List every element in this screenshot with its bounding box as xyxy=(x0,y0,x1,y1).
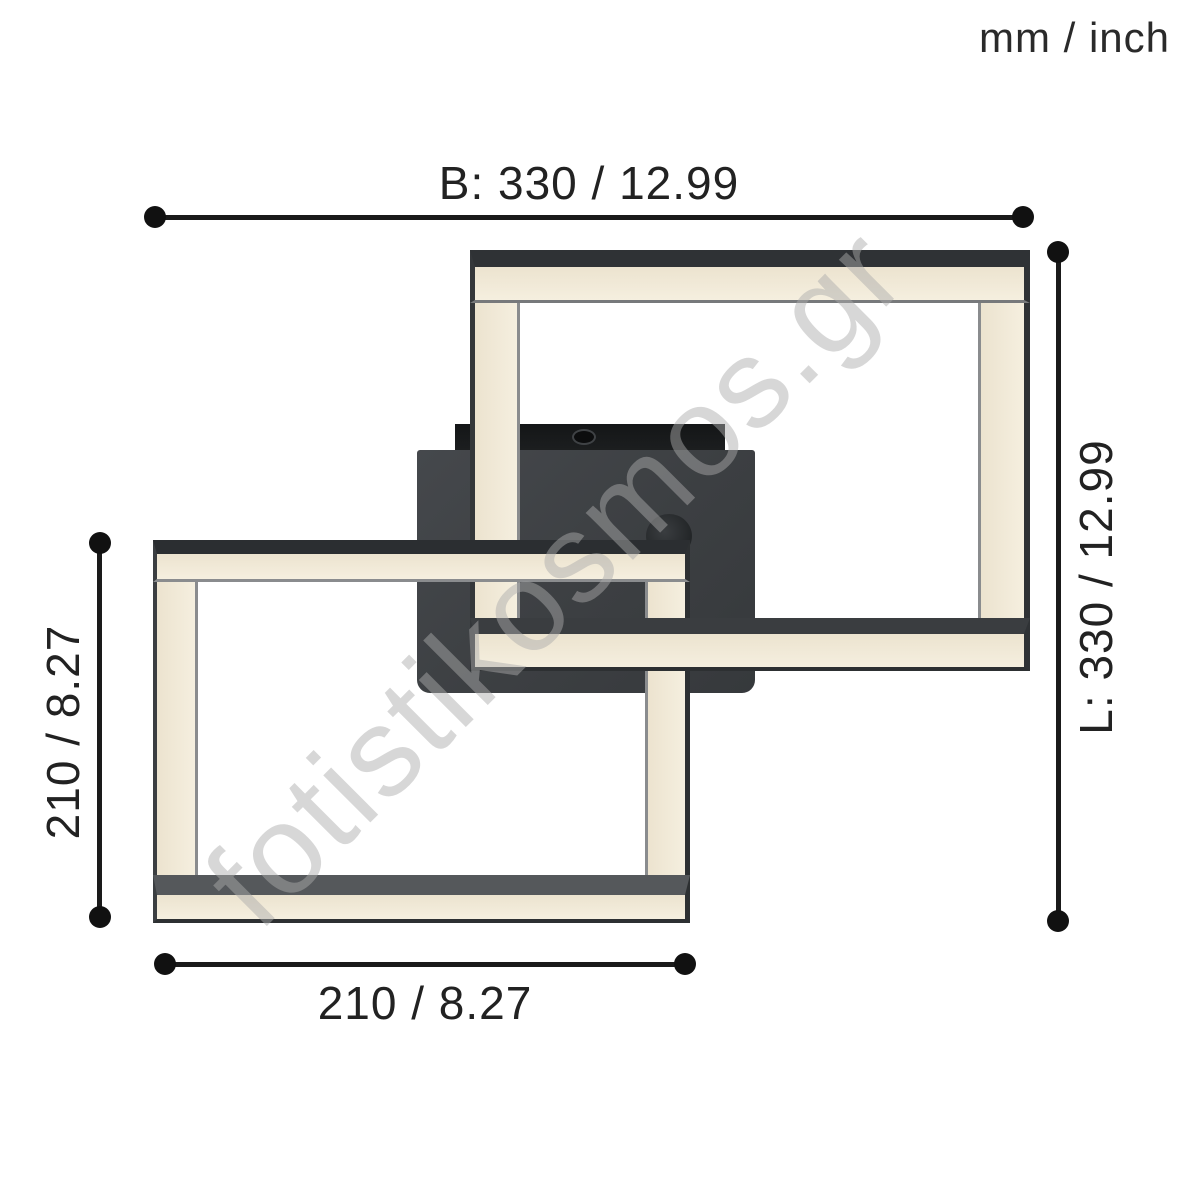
dimension-total-length-label: L: 330 / 12.99 xyxy=(1068,377,1124,797)
large-frame-right-bar xyxy=(978,250,1030,671)
small-frame-bottom-bar xyxy=(153,875,690,923)
dimension-line xyxy=(1056,252,1061,921)
small-led-square-frame xyxy=(153,540,690,923)
dimension-line xyxy=(97,543,102,917)
dimension-small-square-height-label: 210 / 8.27 xyxy=(35,522,91,942)
dimension-endpoint-dot xyxy=(674,953,696,975)
dimension-line xyxy=(165,962,685,967)
dimension-endpoint-dot xyxy=(154,953,176,975)
dimension-endpoint-dot xyxy=(1047,910,1069,932)
dimension-endpoint-dot xyxy=(89,532,111,554)
dimension-endpoint-dot xyxy=(144,206,166,228)
dimension-small-square-width-label: 210 / 8.27 xyxy=(165,976,685,1030)
dimension-total-width-label: B: 330 / 12.99 xyxy=(155,156,1023,210)
small-frame-right-bar xyxy=(645,540,690,923)
dimension-endpoint-dot xyxy=(89,906,111,928)
large-frame-bottom-bar xyxy=(470,618,1030,671)
small-frame-left-bar xyxy=(153,540,198,923)
units-label: mm / inch xyxy=(820,14,1170,62)
dimension-line xyxy=(155,215,1023,220)
dimension-endpoint-dot xyxy=(1012,206,1034,228)
product-dimension-diagram: mm / inch fotistikosmos.gr B: 330 / 12.9… xyxy=(0,0,1181,1181)
small-frame-top-bar xyxy=(153,540,690,582)
large-frame-top-bar xyxy=(470,250,1030,303)
dimension-endpoint-dot xyxy=(1047,241,1069,263)
